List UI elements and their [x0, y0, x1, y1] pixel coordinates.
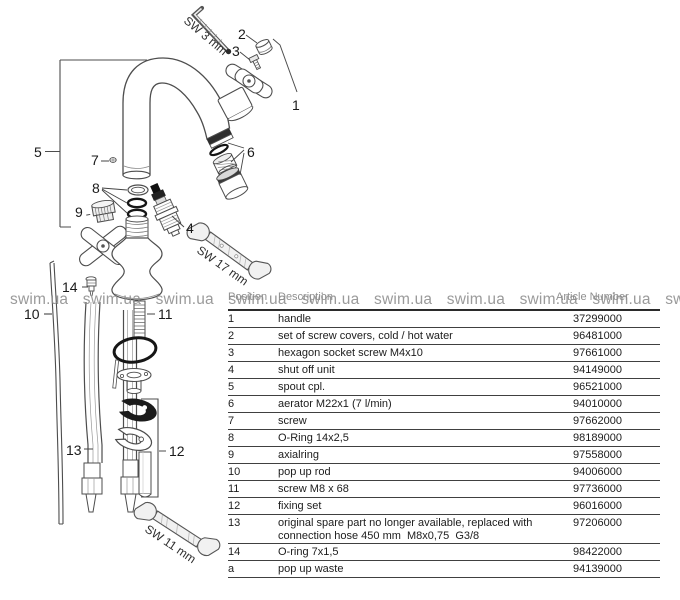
part-label-8: 8	[92, 180, 100, 196]
cell-article: 96521000	[556, 381, 660, 395]
cell-article: 37299000	[556, 313, 660, 327]
table-row: 7 screw 97662000	[228, 413, 660, 430]
part-label-6: 6	[247, 144, 255, 160]
flange-drawing	[113, 360, 151, 394]
cell-article: 98422000	[556, 546, 660, 560]
cell-position: 13	[228, 517, 278, 543]
bracket-part1	[273, 39, 297, 92]
table-row: 11 screw M8 x 68 97736000	[228, 481, 660, 498]
parts-table: Position Description Article Number 1 ha…	[228, 290, 660, 578]
cell-description: O-Ring 14x2,5	[278, 432, 556, 446]
cell-article: 94006000	[556, 466, 660, 480]
cell-article: 94149000	[556, 364, 660, 378]
faucet-body-drawing	[112, 238, 162, 300]
part-label-13: 13	[66, 442, 82, 458]
table-row: 12 fixing set 96016000	[228, 498, 660, 515]
cell-position: 3	[228, 347, 278, 361]
col-header-article: Article Number	[556, 290, 660, 309]
part-label-14: 14	[62, 279, 78, 295]
part-label-11: 11	[158, 306, 173, 322]
part-label-3: 3	[232, 43, 240, 59]
cell-article: 98189000	[556, 432, 660, 446]
cell-article: 94139000	[556, 563, 660, 577]
cell-description: hexagon socket screw M4x10	[278, 347, 556, 361]
part14-drawing	[82, 277, 96, 296]
cell-description: fixing set	[278, 500, 556, 514]
table-header-row: Position Description Article Number	[228, 290, 660, 311]
table-row: 13 original spare part no longer availab…	[228, 515, 660, 544]
cell-position: 10	[228, 466, 278, 480]
cell-position: 5	[228, 381, 278, 395]
cell-position: 9	[228, 449, 278, 463]
table-body: 1 handle 37299000 2 set of screw covers,…	[228, 311, 660, 578]
hex-screw-drawing	[249, 55, 263, 71]
hose-connector-right	[121, 460, 140, 512]
cell-description: O-ring 7x1,5	[278, 546, 556, 560]
table-row: 2 set of screw covers, cold / hot water …	[228, 328, 660, 345]
axialring-drawing	[84, 199, 116, 224]
table-row: 1 handle 37299000	[228, 311, 660, 328]
table-row: 3 hexagon socket screw M4x10 97661000	[228, 345, 660, 362]
screw7-drawing	[101, 158, 116, 163]
cell-position: 12	[228, 500, 278, 514]
table-row: 8 O-Ring 14x2,5 98189000	[228, 430, 660, 447]
cell-description: spout cpl.	[278, 381, 556, 395]
cell-position: 6	[228, 398, 278, 412]
part-label-7: 7	[91, 152, 99, 168]
cell-description: handle	[278, 313, 556, 327]
part-label-12: 12	[169, 443, 185, 459]
table-row: 10 pop up rod 94006000	[228, 464, 660, 481]
table-row: 5 spout cpl. 96521000	[228, 379, 660, 396]
cell-position: 11	[228, 483, 278, 497]
spare-parts-page: 1 2 3 4 5 6 7 8 9 10 11 12 13 14 SW 3 mm…	[0, 0, 680, 600]
aerator-parts	[209, 143, 249, 202]
cell-description: screw M8 x 68	[278, 483, 556, 497]
table-row: 14 O-ring 7x1,5 98422000	[228, 544, 660, 561]
cell-description: set of screw covers, cold / hot water	[278, 330, 556, 344]
cell-article: 96481000	[556, 330, 660, 344]
cell-position: a	[228, 563, 278, 577]
cell-article: 97662000	[556, 415, 660, 429]
hose-drawing	[84, 302, 137, 463]
cell-article: 94010000	[556, 398, 660, 412]
wrench-sw11-icon	[126, 487, 229, 571]
large-oring-drawing	[113, 335, 158, 365]
pop-up-rod-drawing	[44, 261, 63, 524]
cell-description: axialring	[278, 449, 556, 463]
table-row: a pop up waste 94139000	[228, 561, 660, 578]
cell-position: 1	[228, 313, 278, 327]
cell-article: 97736000	[556, 483, 660, 497]
cell-description: screw	[278, 415, 556, 429]
cell-description: pop up waste	[278, 563, 556, 577]
table-row: 6 aerator M22x1 (7 l/min) 94010000	[228, 396, 660, 413]
cell-position: 7	[228, 415, 278, 429]
cell-description: original spare part no longer available,…	[278, 517, 556, 543]
part-label-5: 5	[34, 144, 42, 160]
cell-position: 14	[228, 546, 278, 560]
cartridge-drawing	[143, 180, 186, 240]
cell-description: shut off unit	[278, 364, 556, 378]
cell-description: aerator M22x1 (7 l/min)	[278, 398, 556, 412]
screw-cover-drawing	[255, 38, 273, 56]
cell-article: 97206000	[556, 517, 660, 543]
cell-article: 97661000	[556, 347, 660, 361]
part-label-1: 1	[292, 97, 300, 113]
body-neck-threads	[126, 216, 148, 239]
white-horseshoe-washer	[114, 424, 154, 454]
fixing-sleeve-drawing	[139, 452, 151, 497]
cell-description: pop up rod	[278, 466, 556, 480]
cell-position: 8	[228, 432, 278, 446]
part-label-9: 9	[75, 204, 83, 220]
cell-position: 2	[228, 330, 278, 344]
part-label-4: 4	[186, 220, 194, 236]
table-row: 9 axialring 97558000	[228, 447, 660, 464]
hose-connector-left	[82, 463, 102, 512]
cell-article: 96016000	[556, 500, 660, 514]
col-header-position: Position	[228, 290, 278, 309]
table-row: 4 shut off unit 94149000	[228, 362, 660, 379]
cell-position: 4	[228, 364, 278, 378]
tool-label-sw3: SW 3 mm	[181, 14, 230, 59]
cell-article: 97558000	[556, 449, 660, 463]
part-label-2: 2	[238, 26, 246, 42]
screw11-drawing	[134, 301, 155, 338]
part-label-10: 10	[24, 306, 40, 322]
col-header-description: Description	[278, 290, 556, 309]
